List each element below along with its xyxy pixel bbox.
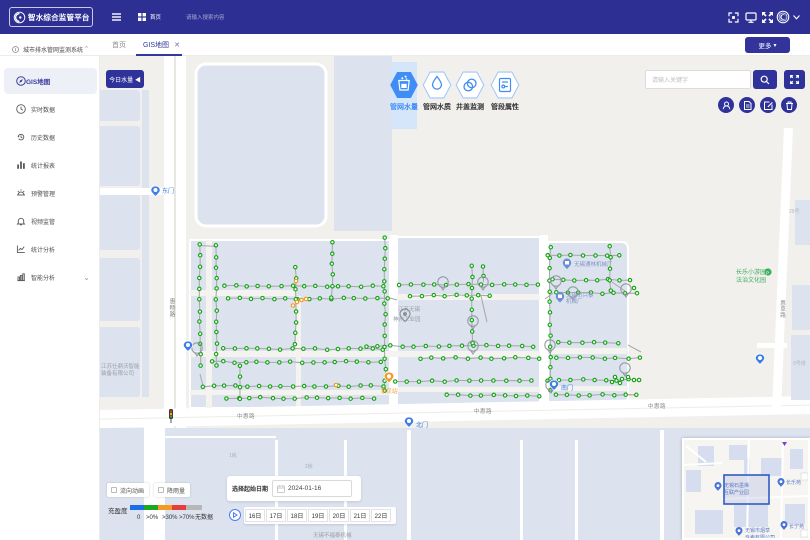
svg-text:长宁苑: 长宁苑 <box>789 523 804 530</box>
svg-text:P: P <box>766 271 769 276</box>
svg-text:中惠路: 中惠路 <box>474 407 492 415</box>
svg-text:9号楼: 9号楼 <box>793 360 806 367</box>
svg-text:装备有限公司: 装备有限公司 <box>101 369 134 377</box>
svg-text:无锡市兴泰: 无锡市兴泰 <box>566 291 594 299</box>
svg-text:0: 0 <box>137 515 141 521</box>
svg-text:无锡通林机械厂: 无锡通林机械厂 <box>574 260 613 268</box>
svg-text:>30%: >30% <box>162 515 178 521</box>
svg-text:泵贝站: 泵贝站 <box>381 387 398 395</box>
svg-text:中惠路: 中惠路 <box>237 412 255 420</box>
svg-text:中惠路: 中惠路 <box>648 402 666 410</box>
svg-text:惠畅路: 惠畅路 <box>168 297 175 318</box>
svg-text:充盈度: 充盈度 <box>108 506 128 515</box>
svg-text:互联产业园: 互联产业园 <box>724 489 749 496</box>
svg-text:无锡不福泰机械: 无锡不福泰机械 <box>313 531 352 539</box>
svg-text:专卖有限公司: 专卖有限公司 <box>745 534 775 538</box>
svg-text:江苏仕鼎沃智能: 江苏仕鼎沃智能 <box>101 362 140 370</box>
svg-text:>0%: >0% <box>146 515 159 521</box>
svg-text:南门: 南门 <box>561 384 573 392</box>
svg-text:无锡市烟草: 无锡市烟草 <box>745 527 770 534</box>
svg-text:长乐苑: 长乐苑 <box>786 479 801 486</box>
svg-text:东门: 东门 <box>162 187 174 195</box>
svg-text:无锡石墨烯: 无锡石墨烯 <box>724 482 749 489</box>
svg-text:>70%: >70% <box>179 515 195 521</box>
svg-text:机械厂: 机械厂 <box>566 297 583 305</box>
svg-text:法治文化园: 法治文化园 <box>736 276 766 284</box>
svg-text:惠草路: 惠草路 <box>779 299 786 319</box>
svg-text:2栋: 2栋 <box>305 463 313 470</box>
svg-text:29号: 29号 <box>789 209 800 215</box>
svg-text:北门: 北门 <box>416 421 428 429</box>
svg-text:1栋: 1栋 <box>229 452 237 459</box>
svg-text:长乐小游园: 长乐小游园 <box>736 268 766 276</box>
svg-text:无数据: 无数据 <box>195 513 213 521</box>
